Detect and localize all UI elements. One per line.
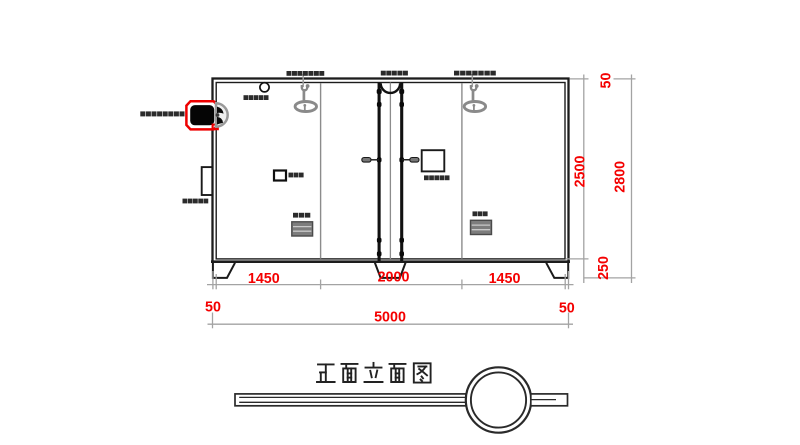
svg-text:2500: 2500 — [573, 156, 589, 188]
svg-text:1450: 1450 — [489, 271, 521, 287]
svg-text:5000: 5000 — [374, 310, 406, 326]
svg-text:50: 50 — [599, 73, 615, 89]
svg-text:1450: 1450 — [248, 271, 280, 287]
svg-text:2000: 2000 — [378, 270, 410, 286]
svg-text:250: 250 — [596, 256, 612, 280]
svg-text:50: 50 — [559, 301, 575, 317]
svg-text:2800: 2800 — [613, 161, 629, 193]
svg-text:50: 50 — [205, 299, 221, 315]
